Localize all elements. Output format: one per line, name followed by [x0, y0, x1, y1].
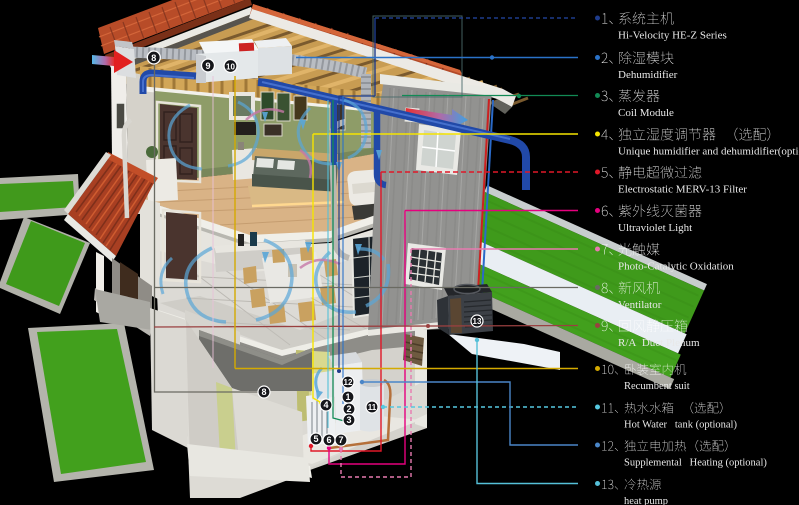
svg-text:13: 13: [473, 317, 482, 326]
svg-text:Electrostatic MERV-13 Filter: Electrostatic MERV-13 Filter: [618, 184, 747, 196]
svg-text:2: 2: [346, 404, 351, 414]
svg-text:8: 8: [151, 53, 156, 63]
svg-text:Unique humidifier and dehumidi: Unique humidifier and dehumidifier(optio…: [618, 146, 799, 158]
svg-text:7: 7: [338, 435, 343, 445]
svg-text:11: 11: [368, 403, 377, 412]
svg-text:Ultraviolet Light: Ultraviolet Light: [618, 222, 692, 234]
svg-text:1: 1: [345, 392, 350, 402]
svg-text:4: 4: [323, 400, 328, 410]
svg-text:12: 12: [344, 378, 353, 387]
svg-text:8: 8: [261, 387, 266, 397]
svg-text:Dehumidifier: Dehumidifier: [618, 69, 678, 81]
svg-text:Ventilator: Ventilator: [618, 299, 662, 311]
svg-text:heat pump: heat pump: [624, 496, 668, 505]
svg-text:3: 3: [346, 415, 351, 425]
svg-text:Coil Module: Coil Module: [618, 107, 674, 119]
svg-text:Hi-Velocity HE-Z Series: Hi-Velocity HE-Z Series: [618, 30, 727, 42]
svg-text:Supplemental Heating (option: Supplemental Heating (optional): [624, 458, 767, 469]
svg-text:5: 5: [313, 434, 318, 444]
svg-text:10: 10: [226, 62, 235, 71]
svg-text:Photo-Catalytic Oxidation: Photo-Catalytic Oxidation: [618, 261, 734, 273]
svg-text:6: 6: [326, 435, 331, 445]
svg-text:9: 9: [205, 61, 210, 71]
svg-text:Hot Water tank (optional): Hot Water tank (optional): [624, 420, 737, 431]
svg-text:Recumbent suit: Recumbent suit: [624, 381, 690, 392]
svg-text:R/A Duct Plenum: R/A Duct Plenum: [618, 337, 700, 349]
